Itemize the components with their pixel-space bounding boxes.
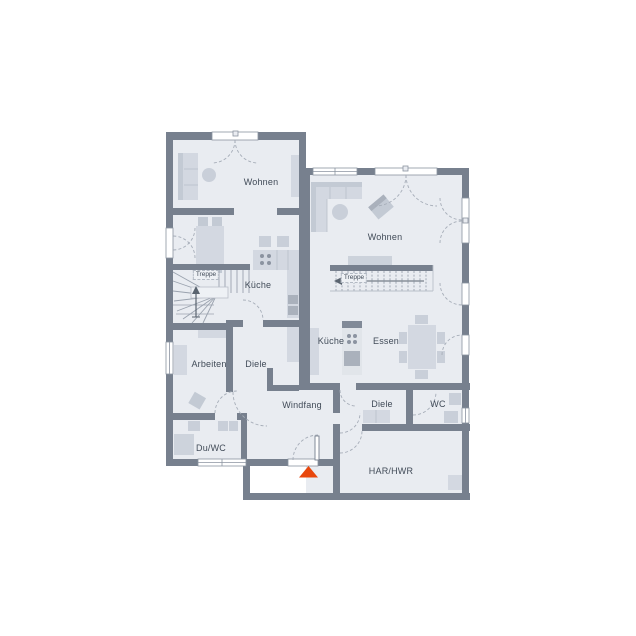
oven (344, 351, 360, 366)
kitchen-counter-left (253, 250, 299, 270)
utility-fixture (448, 475, 462, 490)
terrace-door-east-1 (462, 283, 469, 305)
wc-toilet (444, 411, 458, 423)
door-handle (233, 131, 238, 136)
room-label-diele-right: Diele (371, 399, 393, 409)
wc-toilet (188, 421, 200, 431)
kitchen-cabinet (259, 236, 271, 247)
chair (399, 351, 407, 363)
floor-plan-canvas: Wohnen Treppe Küche Arbeiten Diele Du/WC… (0, 0, 636, 636)
floor-windfang (233, 383, 340, 460)
chair (212, 217, 222, 226)
kitchen-island-cap (342, 321, 362, 328)
stair-label-left: Treppe (193, 270, 219, 280)
corner-sofa-back (311, 182, 362, 187)
french-door-west (166, 228, 173, 258)
room-label-wohnen-right: Wohnen (368, 232, 403, 242)
shelf-under-stair (198, 330, 230, 338)
chair (198, 217, 208, 226)
room-label-arbeiten: Arbeiten (191, 359, 226, 369)
party-wall-upper (299, 140, 306, 168)
coffee-table (332, 204, 348, 220)
dining-table-right (408, 325, 436, 369)
floor-plan-drawing (0, 0, 636, 636)
chair (437, 332, 445, 344)
wall-porch-south (243, 493, 340, 500)
desk (174, 345, 187, 375)
chair (437, 351, 445, 363)
sideboard-right (348, 256, 392, 265)
washbasin (229, 421, 238, 431)
room-label-wohnen-left: Wohnen (244, 177, 279, 187)
dining-table-left (196, 226, 224, 264)
chair (415, 370, 428, 379)
room-label-kueche-right: Küche (318, 336, 345, 346)
wall-south-right (333, 493, 470, 500)
wardrobe-left-diele (287, 327, 299, 362)
party-wall (299, 168, 310, 390)
room-label-wc: WC (430, 399, 445, 409)
side-table-left (202, 168, 216, 182)
sofa-left-back (178, 153, 183, 200)
shower (174, 434, 194, 455)
corner-sofa-side-back (311, 187, 316, 232)
terrace-door-east-2 (462, 335, 469, 355)
stair-label-right: Treppe (341, 273, 367, 283)
chair (415, 315, 428, 324)
room-label-kueche-left: Küche (245, 280, 272, 290)
room-label-diele-left: Diele (245, 359, 267, 369)
appliance (288, 306, 298, 315)
washbasin (449, 393, 461, 405)
entrance-door-opening (288, 459, 318, 466)
oven (288, 295, 298, 304)
room-label-harhwr: HAR/HWR (369, 466, 413, 476)
sideboard-diele-right (363, 410, 390, 423)
room-label-essen: Essen (373, 336, 399, 346)
kitchen-cabinet (277, 236, 289, 247)
room-label-windfang: Windfang (282, 400, 322, 410)
room-label-duwc: Du/WC (196, 443, 226, 453)
door-handle (403, 166, 408, 171)
chair (399, 332, 407, 344)
door-handle (463, 218, 468, 223)
sideboard-left (291, 155, 299, 197)
washbasin (218, 421, 228, 431)
entrance-door-leaf (315, 436, 319, 460)
